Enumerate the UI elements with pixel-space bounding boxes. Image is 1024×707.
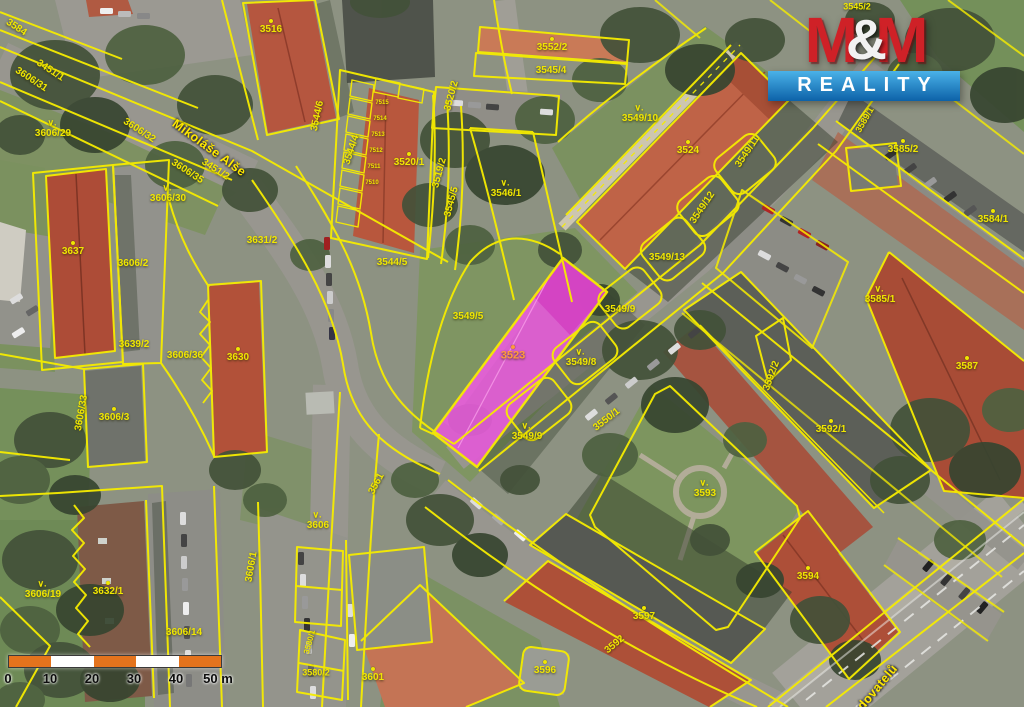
logo-ampersand: & [846, 15, 882, 66]
scale-segment [136, 656, 178, 667]
scale-segment [94, 656, 136, 667]
aerial-map-canvas[interactable] [0, 0, 1024, 707]
scale-tick-label: 30 [127, 671, 141, 686]
logo-mm-text: M & M [768, 12, 960, 70]
scale-segment [9, 656, 51, 667]
scale-bar-segments [8, 655, 222, 668]
logo-reality-banner: REALITY [768, 71, 960, 101]
logo-letter-m2: M [875, 12, 923, 70]
scale-bar-ticks: 01020304050 m [8, 671, 222, 691]
mm-reality-logo: M & M REALITY [768, 12, 960, 101]
scale-tick-label: 10 [43, 671, 57, 686]
scale-tick-label: 20 [85, 671, 99, 686]
scale-segment [51, 656, 93, 667]
scale-tick-label: 0 [4, 671, 11, 686]
scale-tick-label: 40 [169, 671, 183, 686]
scale-tick-label: 50 m [203, 671, 233, 686]
map-scale-bar: 01020304050 m [8, 655, 222, 691]
scale-segment [179, 656, 221, 667]
cadastral-map-view: 35843606/313451/13606/29∨.3606/32Mikoláš… [0, 0, 1024, 707]
